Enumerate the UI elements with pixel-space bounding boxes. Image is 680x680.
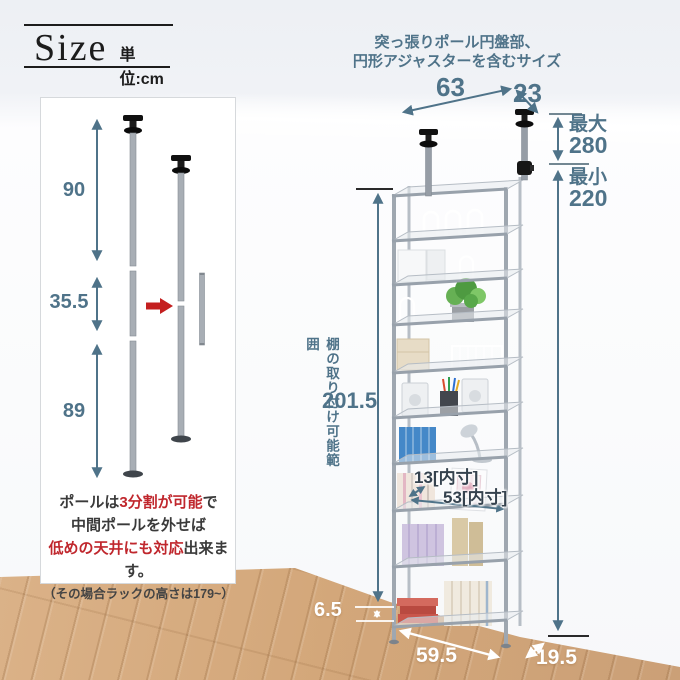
top-size-note: 突っ張りポール円盤部、 円形アジャスターを含むサイズ bbox=[350, 33, 564, 71]
product-size-diagram: Size 単位:cm bbox=[0, 0, 680, 680]
dim-base-width: 59.5 bbox=[416, 644, 457, 668]
dim-base-depth: 19.5 bbox=[536, 646, 577, 670]
rack-illustration bbox=[389, 109, 534, 648]
red-arrow-icon bbox=[146, 298, 173, 314]
pole-diagram bbox=[97, 115, 205, 478]
pole-middle-segment bbox=[200, 273, 205, 345]
pole-seg-35-5: 35.5 bbox=[44, 291, 94, 314]
pole-full bbox=[123, 115, 143, 478]
dim-inner-width: 53[内寸] bbox=[443, 483, 507, 508]
dim-range-value: 201.5 bbox=[322, 388, 377, 414]
dim-top-depth: 23 bbox=[513, 78, 542, 109]
dim-bottom-gap: 6.5 bbox=[314, 599, 342, 622]
pole-short bbox=[171, 155, 191, 443]
dimension-arrows bbox=[355, 89, 589, 657]
pole-panel-note: ポールは3分割が可能で 中間ポールを外せば 低めの天井にも対応出来ます。 （その… bbox=[41, 491, 236, 606]
tension-pole-right bbox=[515, 109, 534, 180]
dim-min-height: 最小 220 bbox=[569, 167, 607, 209]
pole-seg-90: 90 bbox=[54, 179, 94, 202]
dim-max-height: 最大 280 bbox=[569, 114, 607, 156]
dim-top-width: 63 bbox=[436, 72, 465, 103]
pole-seg-89: 89 bbox=[54, 400, 94, 423]
